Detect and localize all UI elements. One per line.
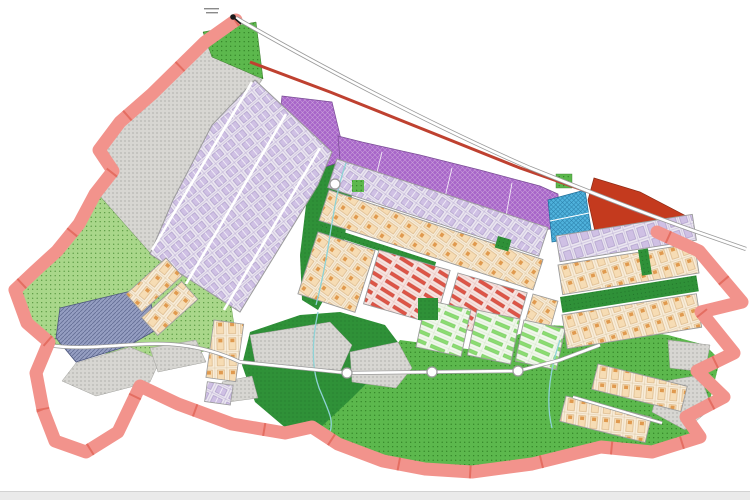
map-viewer bbox=[0, 0, 750, 500]
window-bottom-edge bbox=[0, 491, 750, 500]
site-plan-map[interactable] bbox=[0, 0, 750, 500]
residential-rows-green-2 bbox=[467, 310, 520, 364]
